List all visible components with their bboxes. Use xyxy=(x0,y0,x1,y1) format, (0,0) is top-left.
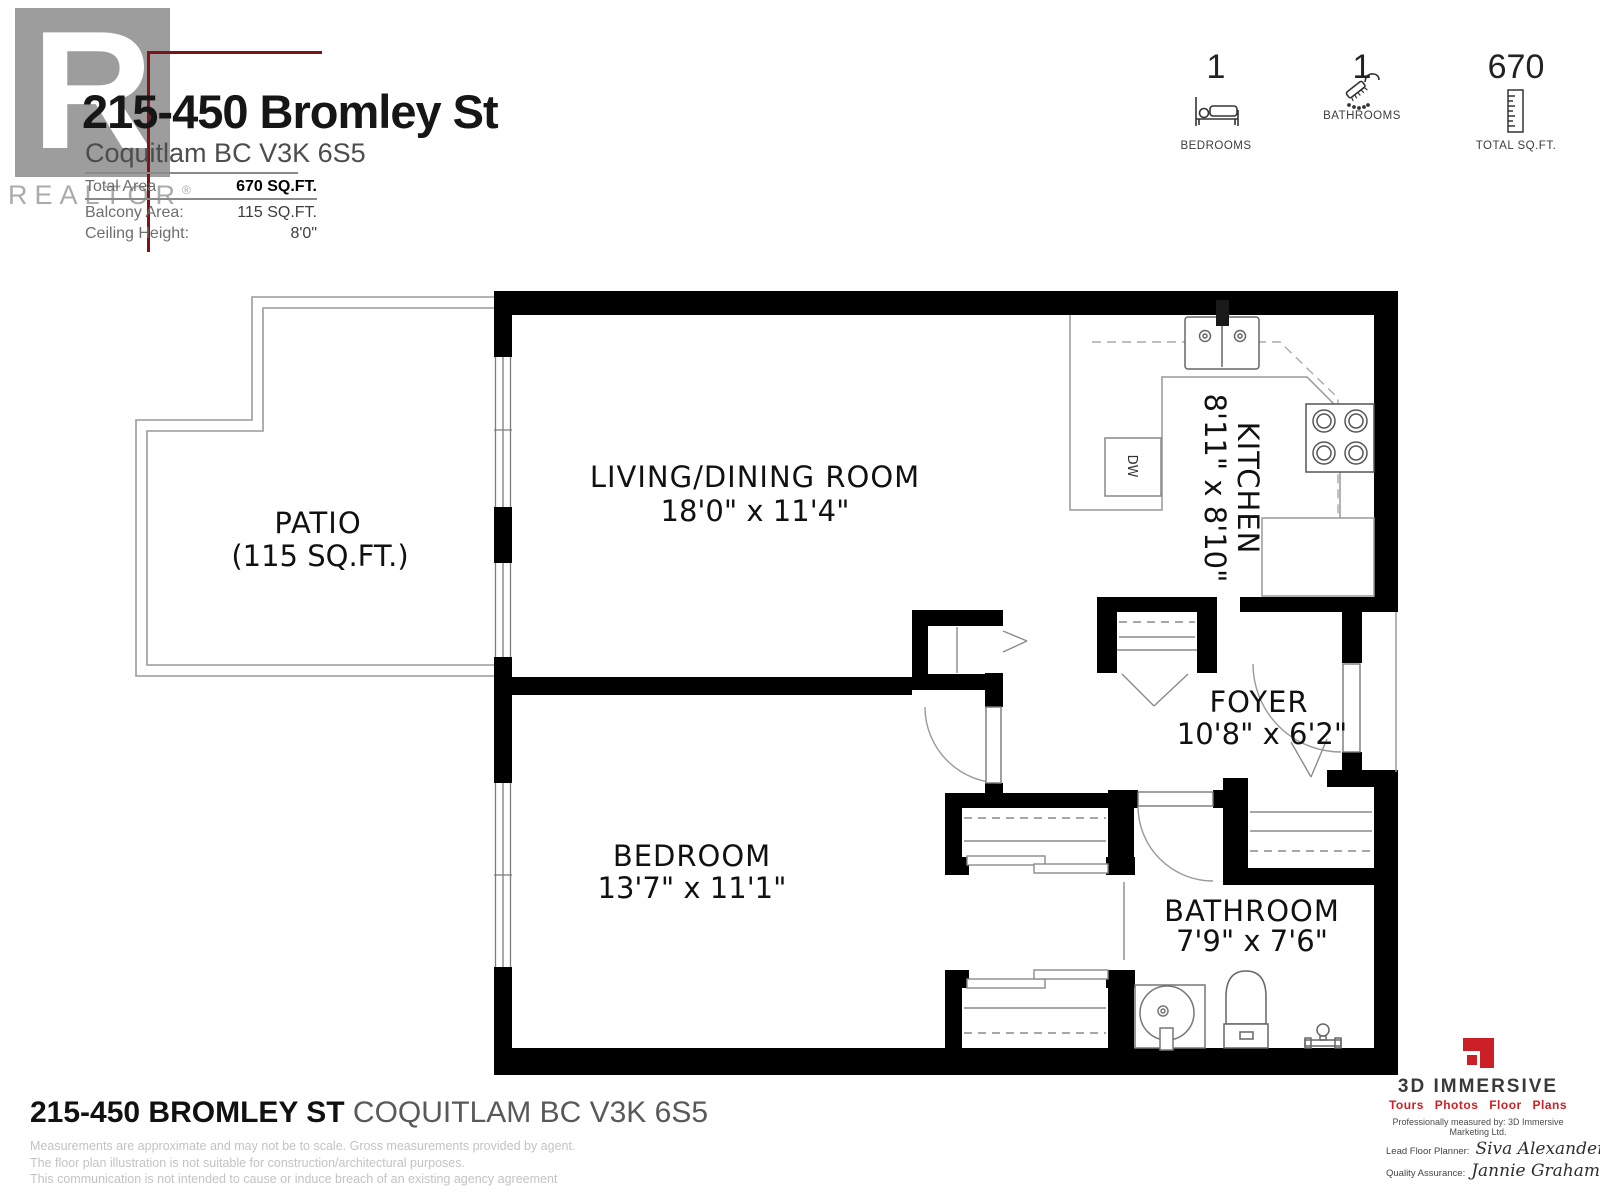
toilet-icon xyxy=(1224,971,1268,1048)
stat-total-area: Total Area 670 SQ.FT. xyxy=(85,176,317,197)
total-sqft-count: 670 xyxy=(1461,48,1571,86)
area-stats: Total Area 670 SQ.FT. Balcony Area: 115 … xyxy=(85,176,317,244)
bedrooms-count: 1 xyxy=(1161,48,1271,86)
summary-total-sqft: 670 TOTAL SQ.FT. xyxy=(1461,48,1571,152)
page-title: 215-450 Bromley St xyxy=(82,84,498,139)
disclaimer-line: Measurements are approximate and may not… xyxy=(30,1138,575,1155)
tub-faucet-icon xyxy=(1305,1024,1341,1048)
qa-label: Quality Assurance: xyxy=(1386,1168,1465,1179)
stat-balcony-area: Balcony Area: 115 SQ.FT. xyxy=(85,202,317,223)
room-label-kitchen: KITCHEN xyxy=(1231,422,1265,555)
page-subtitle: Coquitlam BC V3K 6S5 xyxy=(85,138,366,169)
footer-address: 215-450 BROMLEY ST COQUITLAM BC V3K 6S5 xyxy=(30,1096,708,1130)
bedrooms-label: BEDROOMS xyxy=(1161,140,1271,152)
stat-label: Total Area xyxy=(85,176,156,197)
bathroom-door xyxy=(1138,792,1213,806)
dishwasher: DW xyxy=(1105,438,1161,496)
planner-label: Lead Floor Planner: xyxy=(1386,1146,1469,1157)
stat-label: Balcony Area: xyxy=(85,202,184,223)
room-label-patio: PATIO xyxy=(274,506,361,540)
closet-details xyxy=(957,622,1372,1033)
room-dims-bedroom: 13'7" x 11'1" xyxy=(598,871,787,905)
bed-icon xyxy=(1161,88,1271,134)
disclaimer-line: This communication is not intended to ca… xyxy=(30,1171,575,1188)
brand-measured-by: Professionally measured by: 3D Immersive… xyxy=(1378,1117,1578,1137)
stove-icon xyxy=(1306,404,1374,472)
brand-3d-immersive: 3D IMMERSIVE Tours Photos Floor Plans Pr… xyxy=(1378,1038,1578,1181)
footer-address-bold: 215-450 BROMLEY ST xyxy=(30,1096,345,1129)
summary-bedrooms: 1 BEDROOMS xyxy=(1161,48,1271,152)
bathrooms-count: 1 xyxy=(1307,48,1417,86)
bathroom-fixtures xyxy=(1135,971,1341,1050)
total-sqft-label: TOTAL SQ.FT. xyxy=(1461,140,1571,152)
stat-value: 8'0" xyxy=(290,223,317,244)
room-dims-patio: (115 SQ.FT.) xyxy=(231,539,408,573)
room-dims-bathroom: 7'9" x 7'6" xyxy=(1176,924,1328,958)
bathroom-sink-icon xyxy=(1135,985,1205,1050)
bedroom-door xyxy=(986,707,1001,783)
qa-row: Quality Assurance: Jannie Graham xyxy=(1378,1161,1578,1181)
room-label-bedroom: BEDROOM xyxy=(613,839,771,873)
disclaimer-line: The floor plan illustration is not suita… xyxy=(30,1155,575,1172)
footer-address-city: COQUITLAM BC V3K 6S5 xyxy=(353,1096,708,1129)
stat-ceiling-height: Ceiling Height: 8'0" xyxy=(85,223,317,244)
brand-tagline: Tours Photos Floor Plans xyxy=(1378,1098,1578,1112)
planner-row: Lead Floor Planner: Siva Alexander xyxy=(1378,1139,1578,1159)
patio-outline xyxy=(136,297,500,676)
room-dims-foyer: 10'8" x 6'2" xyxy=(1177,717,1347,751)
room-label-living-dining: LIVING/DINING ROOM xyxy=(590,460,920,494)
stat-label: Ceiling Height: xyxy=(85,223,189,244)
room-label-bathroom: BATHROOM xyxy=(1164,894,1340,928)
planner-signature: Siva Alexander xyxy=(1475,1139,1600,1159)
3d-immersive-logo-icon xyxy=(1378,1038,1578,1072)
summary-bathrooms: 1 BATHROOMS xyxy=(1307,48,1417,122)
dishwasher-label: DW xyxy=(1124,455,1139,478)
red-crosshair-horizontal xyxy=(147,51,322,54)
stat-value: 115 SQ.FT. xyxy=(237,202,317,223)
room-label-foyer: FOYER xyxy=(1209,685,1308,719)
room-dims-living-dining: 18'0" x 11'4" xyxy=(661,494,850,528)
ruler-icon xyxy=(1461,88,1571,134)
divider xyxy=(85,172,298,174)
fridge xyxy=(1262,518,1374,596)
qa-signature: Jannie Graham xyxy=(1471,1161,1600,1181)
brand-name: 3D IMMERSIVE xyxy=(1378,1076,1578,1098)
disclaimer: Measurements are approximate and may not… xyxy=(30,1138,575,1188)
stat-value: 670 SQ.FT. xyxy=(236,176,317,197)
divider xyxy=(85,198,317,200)
room-dims-kitchen: 8'11" x 8'10" xyxy=(1198,394,1232,583)
